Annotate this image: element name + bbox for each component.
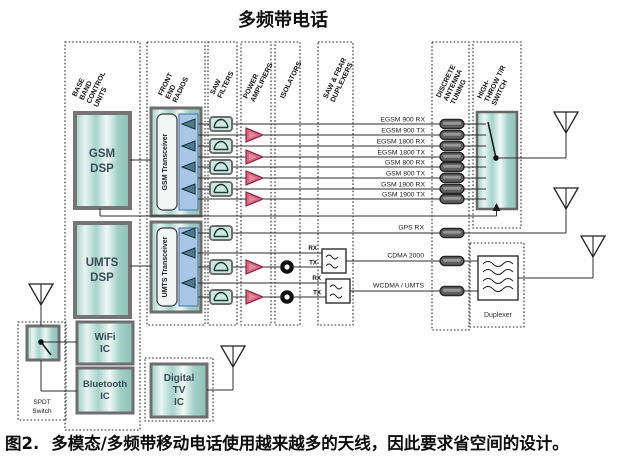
umts-dsp-label-line1: UMTS bbox=[86, 257, 119, 269]
figure-multiband-phone-diagram: BASE BAND CONTROL UNITS FRONT END RADIOS… bbox=[0, 0, 643, 465]
power-amplifier-icon-1 bbox=[246, 128, 263, 142]
tuning-capsule-7 bbox=[440, 185, 464, 194]
power-amplifier-icon-2 bbox=[246, 150, 263, 164]
wcdma-duplexer-block bbox=[326, 279, 350, 303]
header-duplexers: SAW & FBAR DUPLEXERS bbox=[323, 57, 356, 103]
tuning-capsule-cdma bbox=[440, 257, 464, 266]
umts-transceiver-label: UMTS Transceiver bbox=[162, 236, 169, 297]
header-tr-switch: HIGH- THROW T/R SWITCH bbox=[477, 61, 515, 107]
switch-pole-dot bbox=[493, 155, 499, 161]
figure-caption-label: 图2. bbox=[5, 434, 39, 453]
power-amplifier-icon-wcdma bbox=[246, 290, 263, 304]
digital-tv-label-line3: IC bbox=[174, 397, 184, 408]
bluetooth-ic-block: Bluetooth IC bbox=[77, 368, 133, 413]
duplexer-label: Duplexer bbox=[484, 312, 513, 319]
tuning-capsule-3 bbox=[440, 142, 464, 151]
power-amplifier-icon-4 bbox=[246, 192, 263, 206]
wifi-ic-label-line2: IC bbox=[100, 344, 110, 355]
antenna-icon-wifi bbox=[29, 284, 53, 305]
saw-filter-icon-1 bbox=[210, 117, 232, 131]
antenna-icon-2 bbox=[554, 188, 578, 209]
header-saw-filters: SAW FILTERS bbox=[210, 67, 236, 100]
signal-label-cdma: CDMA 2000 bbox=[387, 253, 424, 260]
umts-dsp-label-line2: DSP bbox=[90, 272, 114, 284]
signal-label-egsm900rx: EGSM 900 RX bbox=[380, 117, 425, 124]
signal-label-egsm1800tx: EGSM 1800 TX bbox=[378, 150, 426, 157]
signal-label-egsm1800rx: EGSM 1800 RX bbox=[377, 139, 426, 146]
saw-filter-icon-2 bbox=[210, 139, 232, 153]
digital-tv-ic-block: Digital TV IC bbox=[151, 364, 207, 417]
header-power-amplifiers: POWER AMPLIFIERS bbox=[243, 58, 275, 103]
header-baseband: BASE BAND CONTROL UNITS bbox=[72, 63, 115, 108]
cdma-tx-port-label: TX bbox=[309, 260, 318, 267]
antenna-icon-3 bbox=[581, 236, 605, 257]
spdt-label-line1: SPDT bbox=[33, 399, 50, 406]
header-antenna-tuning: DISCRETE ANTENNA TUNING bbox=[436, 64, 472, 106]
wcdma-rx-port-label: RX bbox=[312, 275, 321, 282]
cdma-rx-port-label: RX bbox=[308, 245, 317, 252]
spdt-label-line2: Switch bbox=[32, 408, 52, 415]
power-amplifier-icon-3 bbox=[246, 171, 263, 185]
diagram-title: 多频带电话 bbox=[238, 9, 328, 31]
saw-filter-icon-3 bbox=[210, 160, 232, 174]
isolator-icon-wcdma bbox=[280, 290, 294, 304]
wifi-ic-label-line1: WiFi bbox=[94, 332, 115, 343]
signal-label-gsm1900tx: GSM 1900 TX bbox=[382, 192, 425, 199]
tuning-capsule-1 bbox=[440, 120, 464, 129]
signal-label-gsm1900rx: GSM 1900 RX bbox=[381, 182, 425, 189]
gsm-dsp-block: GSM DSP bbox=[75, 113, 130, 208]
signal-label-gsm800rx: GSM 800 RX bbox=[385, 160, 426, 167]
saw-filter-icon-gps bbox=[210, 226, 232, 240]
gsm-transceiver-label: GSM Transceiver bbox=[162, 133, 169, 190]
antenna-icon-digital-tv bbox=[221, 346, 245, 367]
signal-label-egsm900tx: EGSM 900 TX bbox=[381, 128, 425, 135]
signal-label-gps: GPS RX bbox=[398, 225, 424, 232]
signal-label-gsm800tx: GSM 800 TX bbox=[386, 171, 426, 178]
signal-label-wcdma: WCDMA / UMTS bbox=[373, 283, 424, 290]
antenna-icon-1 bbox=[554, 112, 578, 133]
figure-caption-text: 多模态/多频带移动电话使用越来越多的天线，因此要求省空间的设计。 bbox=[51, 433, 569, 453]
power-amplifier-icon-cdma bbox=[246, 260, 263, 274]
tuning-capsule-wcdma bbox=[440, 287, 464, 296]
wifi-ic-block: WiFi IC bbox=[77, 322, 133, 364]
tuning-capsule-2 bbox=[440, 131, 464, 140]
tuning-capsule-8 bbox=[440, 195, 464, 204]
bluetooth-ic-label-line1: Bluetooth bbox=[83, 379, 128, 390]
wcdma-tx-port-label: TX bbox=[313, 290, 322, 297]
isolator-icon-cdma bbox=[280, 260, 294, 274]
tuning-capsule-gps bbox=[440, 229, 464, 238]
digital-tv-label-line1: Digital bbox=[164, 373, 195, 384]
diagram-canvas: BASE BAND CONTROL UNITS FRONT END RADIOS… bbox=[0, 0, 643, 465]
tuning-capsule-4 bbox=[440, 153, 464, 162]
figure-caption: 图2.多模态/多频带移动电话使用越来越多的天线，因此要求省空间的设计。 bbox=[5, 433, 569, 453]
digital-tv-wires bbox=[207, 367, 233, 390]
header-front-end: FRONT END RADIOS bbox=[158, 69, 191, 104]
cdma-duplexer-block bbox=[322, 249, 346, 273]
tuning-capsule-6 bbox=[440, 174, 464, 183]
bluetooth-ic-label-line2: IC bbox=[100, 391, 110, 402]
gsm-dsp-label-line2: DSP bbox=[90, 163, 114, 175]
umts-dsp-block: UMTS DSP bbox=[75, 223, 130, 317]
saw-filter-icon-cdma bbox=[210, 260, 232, 274]
digital-tv-label-line2: TV bbox=[173, 385, 186, 396]
tuning-capsule-5 bbox=[440, 163, 464, 172]
saw-filter-icon-wcdma bbox=[210, 290, 232, 304]
antenna-duplexer-block: Duplexer bbox=[478, 256, 518, 319]
saw-filter-icon-4 bbox=[210, 182, 232, 196]
gsm-dsp-label-line1: GSM bbox=[89, 148, 115, 160]
